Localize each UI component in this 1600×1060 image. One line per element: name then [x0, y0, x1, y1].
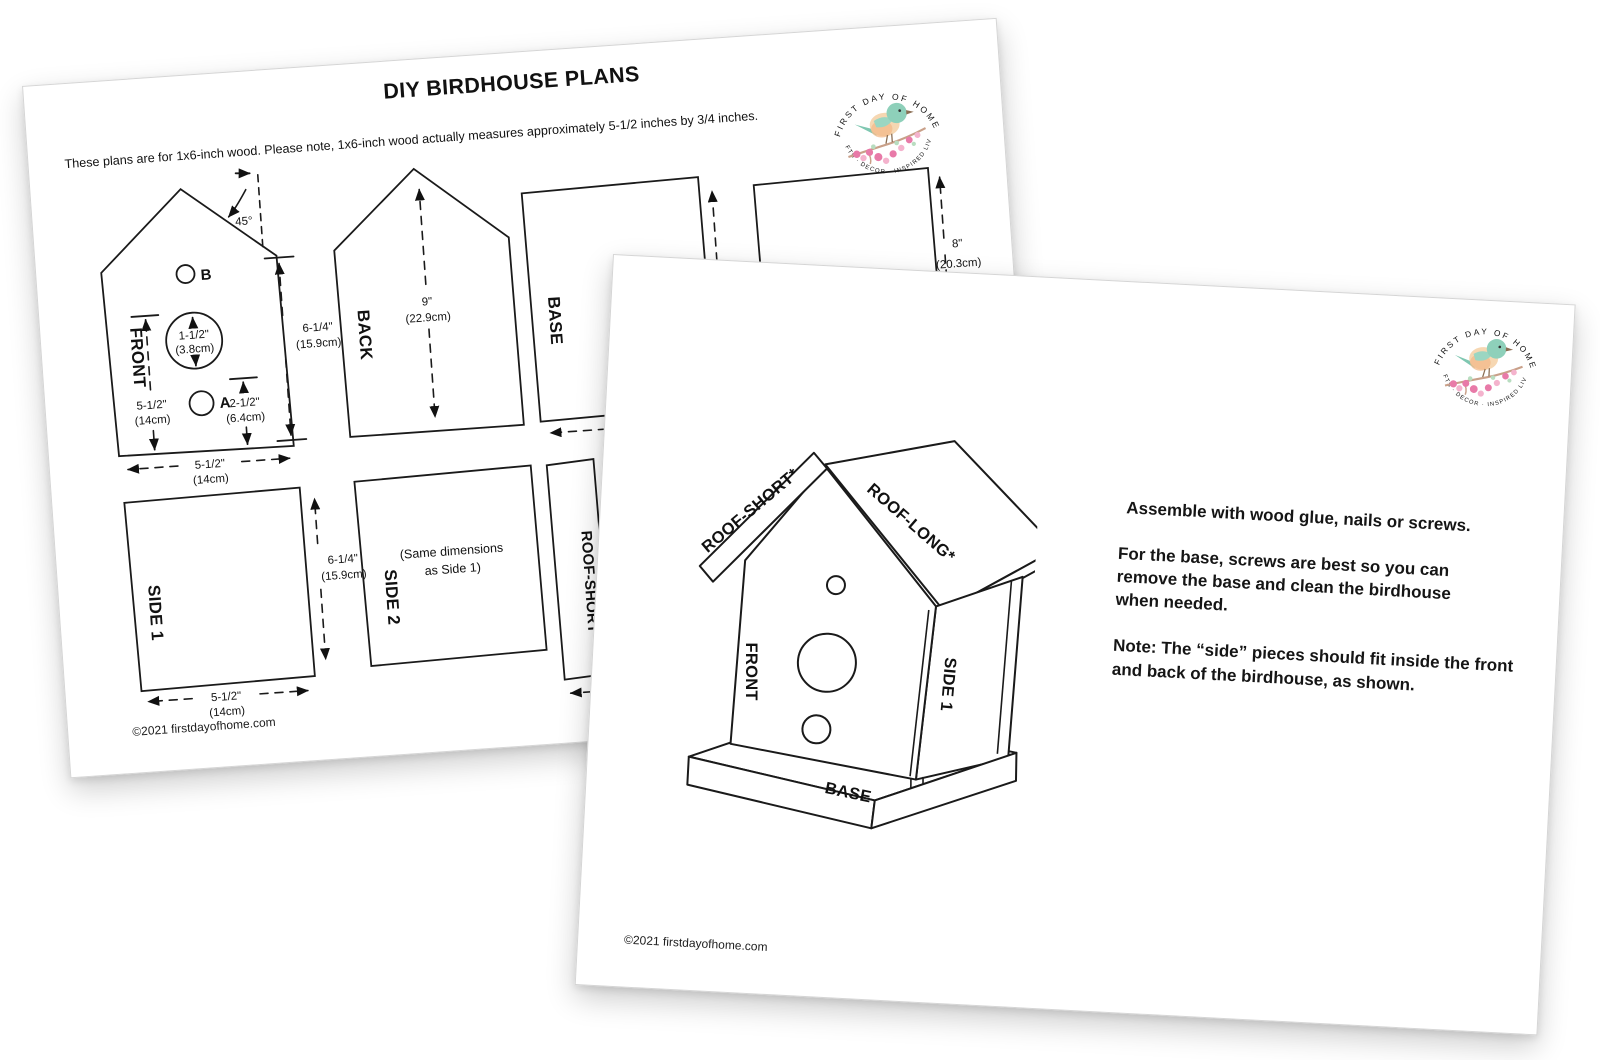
dim-line: [246, 427, 247, 435]
side2-piece-drawing: SIDE 2 (Same dimensions as Side 1): [354, 465, 547, 666]
dim-line: [314, 499, 317, 544]
dim-arrow: [193, 318, 194, 326]
assembled-birdhouse-diagram: ROOF-SHORT* ROOF-LONG* FRONT SIDE 1 BASE: [636, 416, 1042, 846]
right-height-in: 6-1/4": [302, 321, 333, 335]
hole-a: [189, 390, 215, 416]
entrance-dia-in: 1-1/2": [178, 329, 209, 343]
angle-arrow: [236, 172, 250, 174]
dim-line: [242, 458, 290, 461]
instruction-note: Note: The “side” pieces should fit insid…: [1111, 634, 1528, 702]
roof-long-height-cm: (20.3cm): [936, 257, 982, 272]
roof-long-height-in: 8": [952, 238, 963, 251]
side1-width-in: 5-1/2": [211, 690, 242, 704]
side2-note-line2: as Side 1): [424, 560, 481, 578]
dim-tick: [277, 439, 306, 441]
brand-logo: FIRST DAY OF HOME CRAFTS · DECOR · INSPI…: [1420, 300, 1550, 430]
hole-b-label: B: [200, 266, 212, 284]
assembly-page: FIRST DAY OF HOME CRAFTS · DECOR · INSPI…: [575, 254, 1576, 1035]
dim-arrow: [247, 435, 248, 444]
instruction-step: Assemble with wood glue, nails or screws…: [1120, 496, 1536, 541]
back-height-cm: (22.9cm): [405, 311, 451, 326]
entrance-dia-cm: (3.8cm): [175, 342, 215, 357]
hole-a-offset-in: 2-1/2": [229, 396, 260, 410]
dim-line: [419, 190, 426, 285]
left-height-in: 5-1/2": [136, 399, 167, 413]
dim-line: [260, 691, 308, 694]
dim-arrow: [146, 320, 147, 331]
side2-note-line1: (Same dimensions: [399, 541, 503, 562]
dim-tick: [230, 377, 257, 379]
side2-piece-label: SIDE 2: [381, 569, 404, 626]
dim-line: [321, 589, 326, 659]
dim-arrow: [243, 382, 244, 392]
back-piece-drawing: BACK 9" (22.9cm): [329, 162, 524, 437]
angle-curved-arrow: [227, 190, 248, 217]
dim-line: [712, 191, 717, 261]
back-piece-label: BACK: [353, 309, 375, 361]
dim-line: [153, 431, 154, 440]
logo-bird-illustration: [1445, 336, 1524, 398]
dim-line: [940, 177, 944, 238]
roof-angle-label: 45°: [235, 215, 253, 228]
instruction-step: For the base, screws are best so you can…: [1115, 542, 1484, 630]
hole-b: [176, 264, 195, 283]
dim-line: [148, 699, 192, 702]
hole-a-offset-cm: (6.4cm): [226, 411, 266, 426]
side1-height-in: 6-1/4": [327, 553, 358, 567]
dim-arrow: [195, 357, 196, 366]
front-width-in: 5-1/2": [194, 458, 225, 472]
front-piece-drawing: FRONT B A 1-1/2" (3.8cm) 5-1/2" (14cm) 2…: [95, 167, 351, 493]
vent-hole: [827, 576, 846, 595]
back-height-in: 9": [421, 296, 432, 309]
base-piece-label: BASE: [544, 296, 566, 346]
right-height-cm: (15.9cm): [296, 336, 342, 351]
front-piece-label: FRONT: [126, 327, 149, 389]
side1-piece-drawing: SIDE 1 5-1/2" (14cm) 6-1/4" (15.9cm): [124, 483, 376, 724]
dim-line: [128, 466, 178, 469]
front-width-cm: (14cm): [193, 473, 230, 487]
dim-arrow: [154, 440, 155, 450]
angle-ref-line: [258, 175, 263, 253]
assembly-instructions: Assemble with wood glue, nails or screws…: [1110, 496, 1535, 725]
dim-line: [429, 329, 435, 417]
dim-tick: [265, 256, 294, 258]
dim-line: [550, 429, 606, 433]
perch-hole: [802, 715, 831, 744]
dim-tick: [131, 315, 158, 317]
front-label: FRONT: [742, 642, 760, 700]
copyright: ©2021 firstdayofhome.com: [624, 933, 768, 954]
side1-height-cm: (15.9cm): [321, 568, 367, 583]
side1-piece-label: SIDE 1: [144, 584, 167, 641]
left-height-cm: (14cm): [134, 413, 171, 427]
